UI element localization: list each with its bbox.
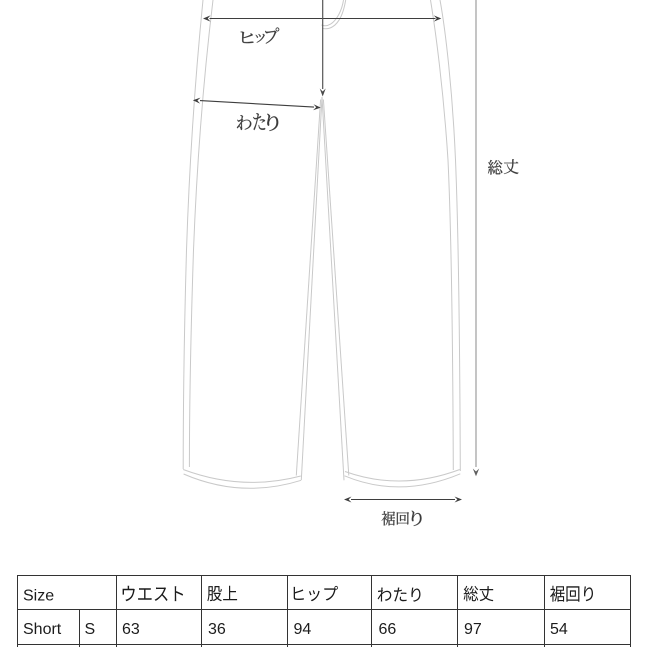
svg-text:54: 54 <box>550 621 568 638</box>
svg-text:36: 36 <box>208 621 226 638</box>
svg-text:63: 63 <box>122 621 140 638</box>
svg-text:S: S <box>85 621 96 638</box>
svg-text:Short: Short <box>23 621 62 638</box>
svg-text:66: 66 <box>379 621 397 638</box>
svg-text:97: 97 <box>464 621 482 638</box>
svg-text:94: 94 <box>294 621 312 638</box>
svg-text:Size: Size <box>23 588 54 605</box>
